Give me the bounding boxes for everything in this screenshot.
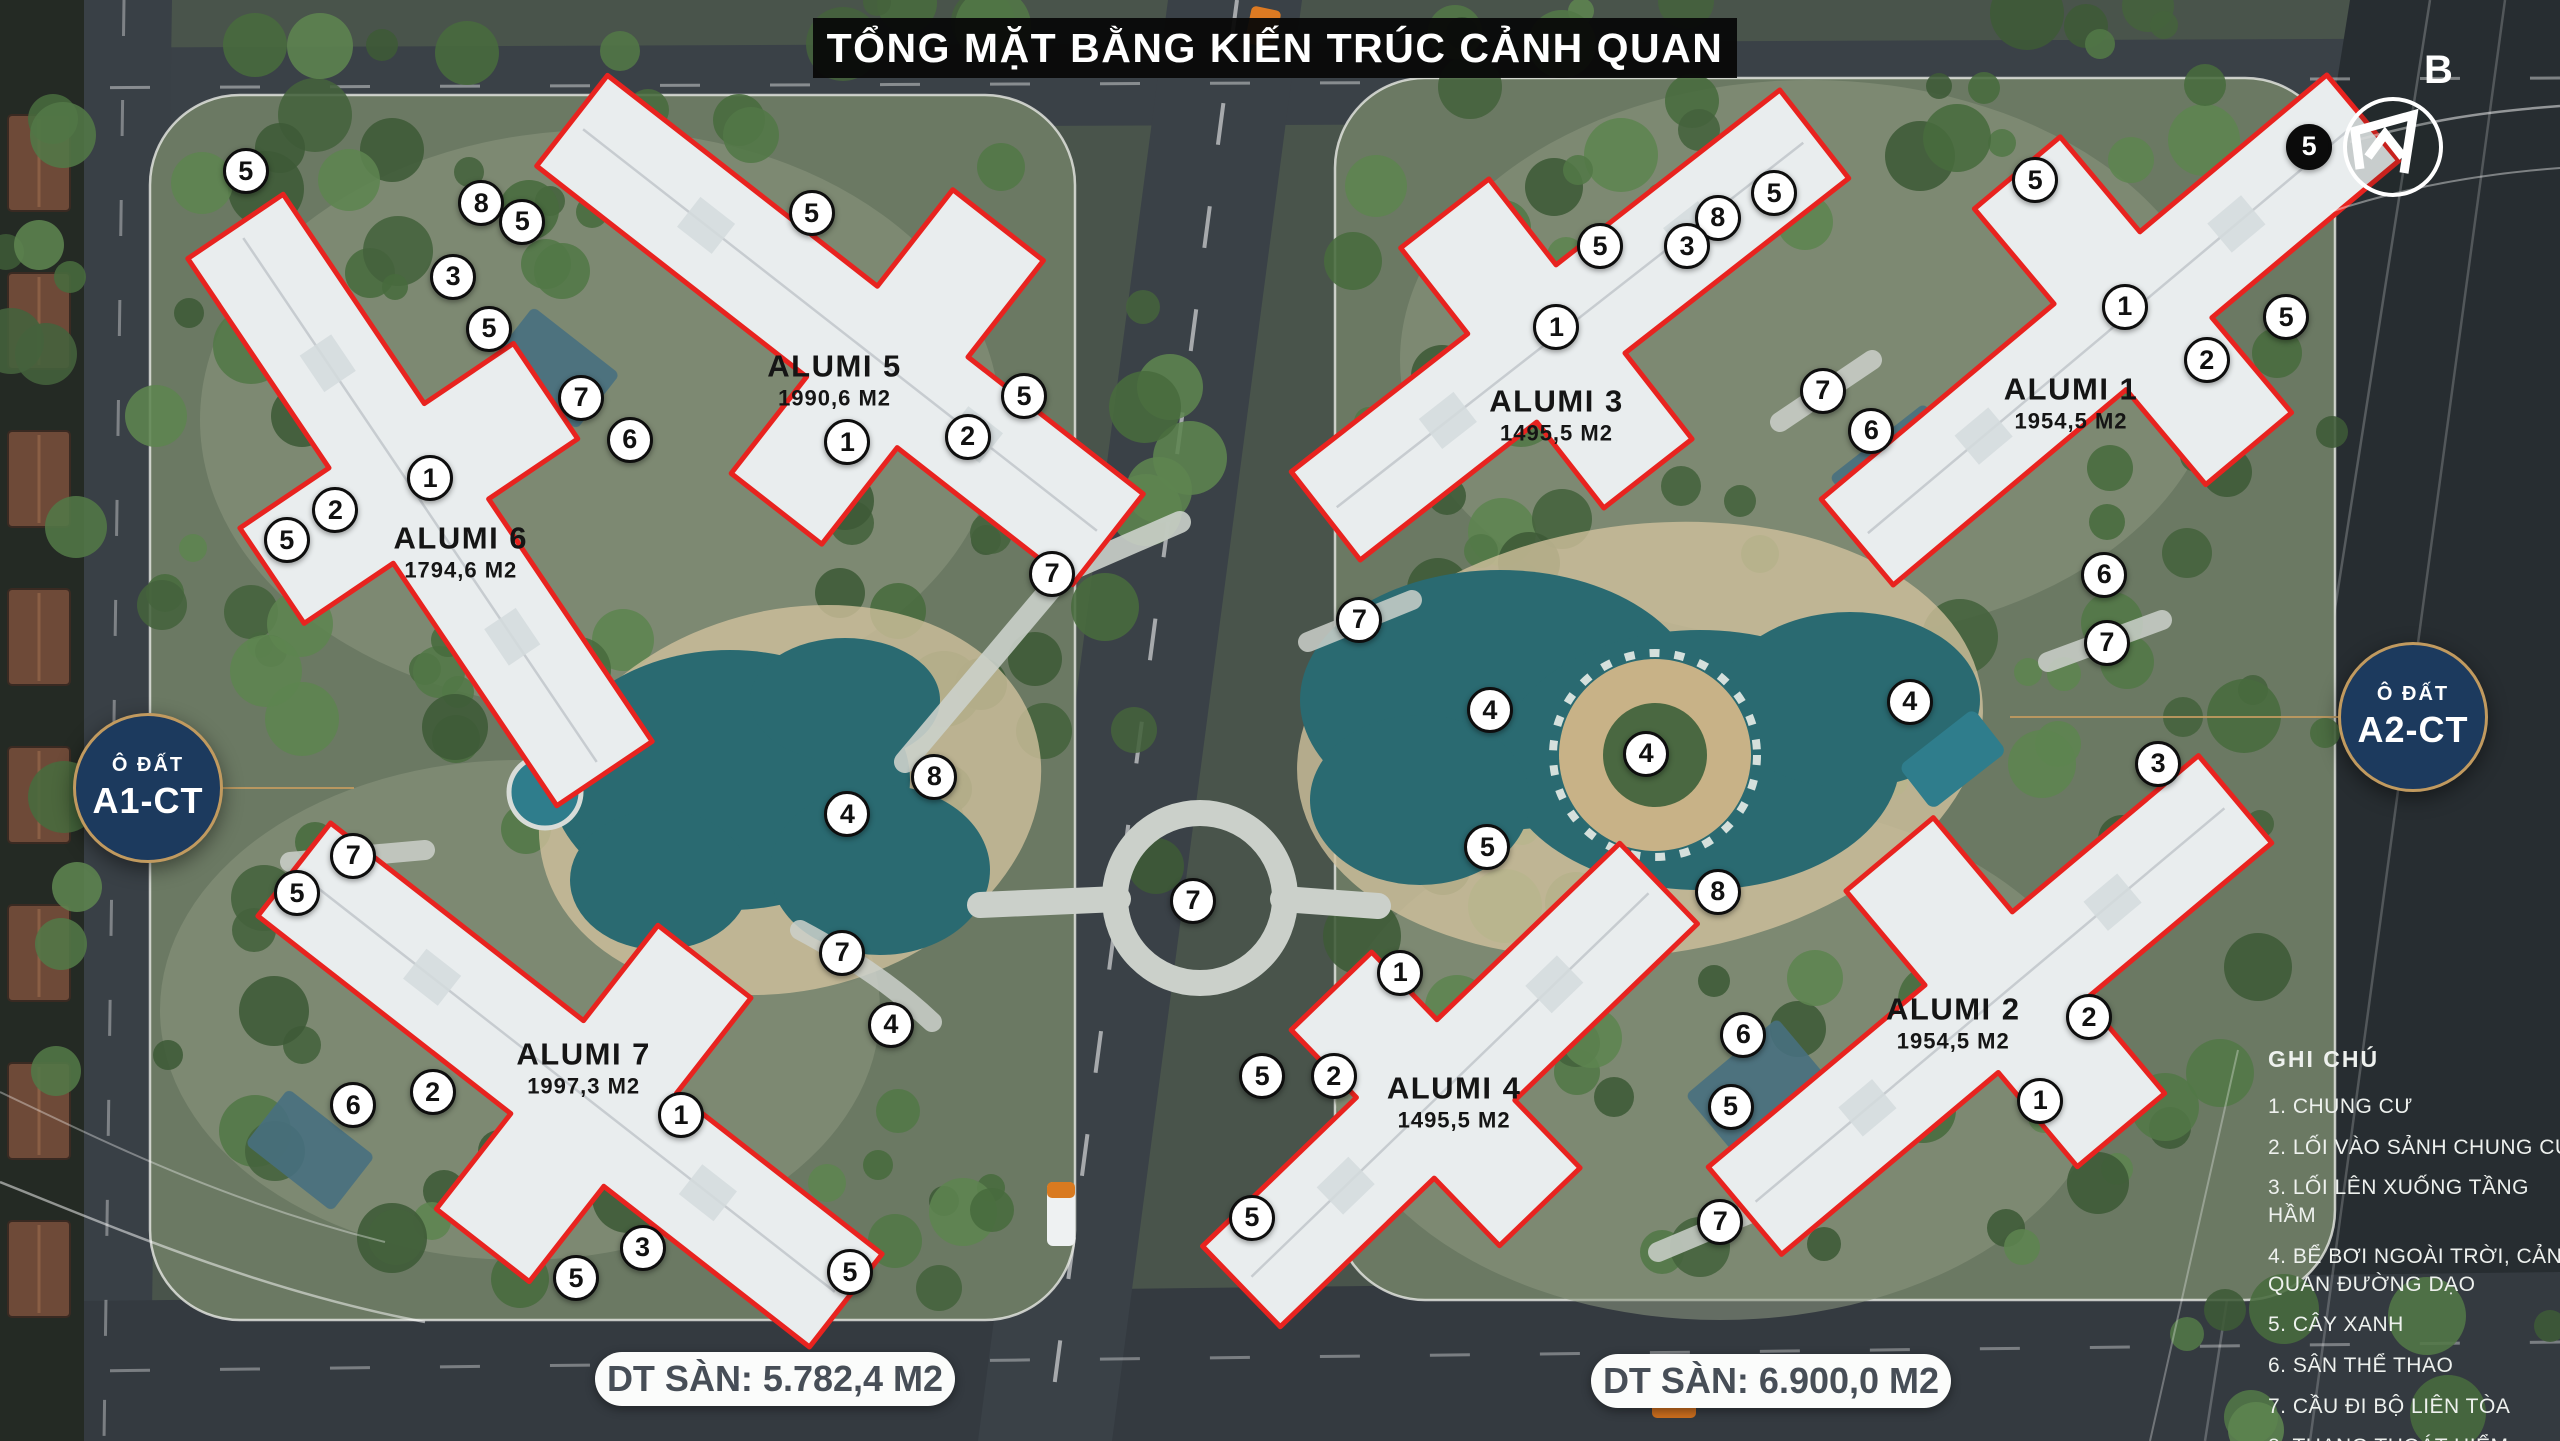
legend-item-3: 3. LỐI LÊN XUỐNG TẦNG HẦM bbox=[2268, 1174, 2560, 1229]
badge-a2-connector bbox=[2010, 716, 2340, 718]
building-area: 1954,5 M2 bbox=[1886, 1029, 2021, 1055]
map-marker-6: 6 bbox=[1720, 1012, 1766, 1058]
building-area: 1997,3 M2 bbox=[516, 1073, 651, 1099]
map-marker-2: 2 bbox=[2066, 994, 2112, 1040]
map-marker-5: 5 bbox=[499, 199, 545, 245]
map-marker-5: 5 bbox=[1229, 1195, 1275, 1241]
map-marker-1: 1 bbox=[824, 419, 870, 465]
building-label-alumi-4: ALUMI 41495,5 M2 bbox=[1387, 1071, 1522, 1134]
map-marker-8: 8 bbox=[911, 754, 957, 800]
badge-a1-kicker: Ô ĐẤT bbox=[112, 754, 184, 777]
building-name: ALUMI 4 bbox=[1387, 1071, 1522, 1107]
floor-area-pill-a2: DT SÀN: 6.900,0 M2 bbox=[1591, 1354, 1951, 1408]
badge-a1-connector bbox=[222, 787, 354, 789]
building-label-alumi-2: ALUMI 21954,5 M2 bbox=[1886, 992, 2021, 1055]
map-marker-7: 7 bbox=[819, 930, 865, 976]
building-name: ALUMI 7 bbox=[516, 1036, 651, 1072]
aerial-scene bbox=[0, 0, 2560, 1441]
map-marker-5: 5 bbox=[2263, 294, 2309, 340]
map-marker-5: 5 bbox=[553, 1255, 599, 1301]
map-marker-5: 5 bbox=[1001, 373, 1047, 419]
map-marker-3: 3 bbox=[430, 254, 476, 300]
legend-item-8: 8. THANG THOÁT HIỂM bbox=[2268, 1433, 2560, 1441]
legend: GHI CHÚ 1. CHUNG CƯ2. LỐI VÀO SẢNH CHUNG… bbox=[2268, 1046, 2560, 1441]
badge-a1-code: A1-CT bbox=[93, 780, 204, 822]
map-marker-7: 7 bbox=[1336, 597, 1382, 643]
map-marker-6: 6 bbox=[2081, 552, 2127, 598]
map-marker-4: 4 bbox=[1467, 687, 1513, 733]
map-marker-1: 1 bbox=[2102, 284, 2148, 330]
map-marker-2: 2 bbox=[1311, 1053, 1357, 1099]
map-marker-5: 5 bbox=[1751, 170, 1797, 216]
building-label-alumi-6: ALUMI 61794,6 M2 bbox=[394, 520, 529, 583]
building-label-alumi-1: ALUMI 11954,5 M2 bbox=[2004, 372, 2139, 435]
building-area: 1495,5 M2 bbox=[1387, 1108, 1522, 1134]
building-area: 1794,6 M2 bbox=[394, 557, 529, 583]
map-marker-5: 5 bbox=[1577, 223, 1623, 269]
legend-item-5: 5. CÂY XANH bbox=[2268, 1311, 2560, 1339]
building-area: 1990,6 M2 bbox=[767, 386, 902, 412]
building-name: ALUMI 1 bbox=[2004, 372, 2139, 408]
legend-item-6: 6. SÂN THỂ THAO bbox=[2268, 1352, 2560, 1380]
map-marker-1: 1 bbox=[1533, 304, 1579, 350]
north-arrow-icon bbox=[2337, 91, 2449, 203]
map-marker-5: 5 bbox=[2286, 124, 2332, 170]
map-marker-3: 3 bbox=[620, 1225, 666, 1271]
building-name: ALUMI 5 bbox=[767, 349, 902, 385]
map-marker-5: 5 bbox=[466, 306, 512, 352]
map-marker-1: 1 bbox=[2017, 1078, 2063, 1124]
north-label: B bbox=[2424, 48, 2453, 93]
page-title-text: TỔNG MẶT BẰNG KIẾN TRÚC CẢNH QUAN bbox=[827, 25, 1724, 72]
map-marker-5: 5 bbox=[789, 190, 835, 236]
building-label-alumi-7: ALUMI 71997,3 M2 bbox=[516, 1036, 651, 1099]
map-marker-6: 6 bbox=[330, 1082, 376, 1128]
map-marker-5: 5 bbox=[264, 517, 310, 563]
building-area: 1954,5 M2 bbox=[2004, 409, 2139, 435]
building-area: 1495,5 M2 bbox=[1489, 421, 1624, 447]
map-marker-5: 5 bbox=[1239, 1053, 1285, 1099]
legend-item-1: 1. CHUNG CƯ bbox=[2268, 1093, 2560, 1121]
map-marker-1: 1 bbox=[407, 455, 453, 501]
map-marker-4: 4 bbox=[824, 791, 870, 837]
map-marker-2: 2 bbox=[312, 487, 358, 533]
map-marker-7: 7 bbox=[330, 833, 376, 879]
building-label-alumi-5: ALUMI 51990,6 M2 bbox=[767, 349, 902, 412]
map-marker-5: 5 bbox=[1708, 1084, 1754, 1130]
map-marker-1: 1 bbox=[1377, 950, 1423, 996]
map-marker-5: 5 bbox=[223, 148, 269, 194]
map-marker-5: 5 bbox=[274, 870, 320, 916]
map-marker-4: 4 bbox=[1623, 731, 1669, 777]
map-marker-6: 6 bbox=[607, 417, 653, 463]
page-title: TỔNG MẶT BẰNG KIẾN TRÚC CẢNH QUAN bbox=[813, 18, 1737, 78]
map-marker-5: 5 bbox=[827, 1249, 873, 1295]
map-marker-8: 8 bbox=[1695, 869, 1741, 915]
map-marker-2: 2 bbox=[2184, 337, 2230, 383]
map-marker-8: 8 bbox=[458, 180, 504, 226]
map-marker-7: 7 bbox=[1170, 878, 1216, 924]
building-name: ALUMI 3 bbox=[1489, 384, 1624, 420]
legend-item-4: 4. BỂ BƠI NGOÀI TRỜI, CẢNH QUAN ĐƯỜNG DẠ… bbox=[2268, 1243, 2560, 1298]
map-marker-5: 5 bbox=[1464, 824, 1510, 870]
map-marker-6: 6 bbox=[1848, 408, 1894, 454]
map-marker-1: 1 bbox=[658, 1092, 704, 1138]
map-marker-7: 7 bbox=[1697, 1199, 1743, 1245]
map-marker-2: 2 bbox=[945, 414, 991, 460]
map-marker-4: 4 bbox=[868, 1002, 914, 1048]
badge-a2-kicker: Ô ĐẤT bbox=[2377, 683, 2449, 706]
map-marker-7: 7 bbox=[1029, 551, 1075, 597]
map-marker-2: 2 bbox=[410, 1069, 456, 1115]
plot-badge-a2ct: Ô ĐẤT A2-CT bbox=[2338, 642, 2488, 792]
map-marker-5: 5 bbox=[2012, 157, 2058, 203]
map-marker-7: 7 bbox=[558, 375, 604, 421]
legend-items: 1. CHUNG CƯ2. LỐI VÀO SẢNH CHUNG CƯ3. LỐ… bbox=[2268, 1093, 2560, 1441]
badge-a2-code: A2-CT bbox=[2358, 709, 2469, 751]
legend-title: GHI CHÚ bbox=[2268, 1046, 2560, 1073]
map-marker-7: 7 bbox=[1800, 368, 1846, 414]
legend-item-2: 2. LỐI VÀO SẢNH CHUNG CƯ bbox=[2268, 1134, 2560, 1162]
floor-area-pill-a1: DT SÀN: 5.782,4 M2 bbox=[595, 1352, 955, 1406]
map-marker-3: 3 bbox=[1664, 223, 1710, 269]
building-label-alumi-3: ALUMI 31495,5 M2 bbox=[1489, 384, 1624, 447]
map-marker-7: 7 bbox=[2084, 620, 2130, 666]
building-name: ALUMI 6 bbox=[394, 520, 529, 556]
legend-item-7: 7. CẦU ĐI BỘ LIÊN TÒA bbox=[2268, 1393, 2560, 1421]
map-marker-4: 4 bbox=[1887, 679, 1933, 725]
site-plan: TỔNG MẶT BẰNG KIẾN TRÚC CẢNH QUAN B Ô ĐẤ… bbox=[0, 0, 2560, 1441]
map-marker-3: 3 bbox=[2135, 741, 2181, 787]
building-name: ALUMI 2 bbox=[1886, 992, 2021, 1028]
plot-badge-a1ct: Ô ĐẤT A1-CT bbox=[73, 713, 223, 863]
